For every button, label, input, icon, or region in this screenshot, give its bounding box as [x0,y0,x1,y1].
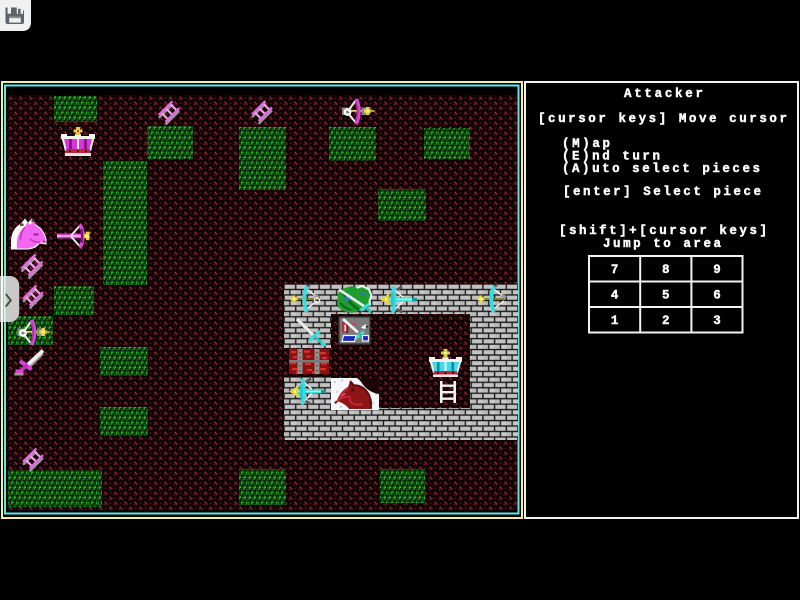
svg-text:8: 8 [662,263,670,277]
svg-text:5: 5 [662,289,670,303]
svg-text:3: 3 [713,314,721,328]
svg-text:7: 7 [611,263,619,277]
svg-text:[cursor keys] Move cursor: [cursor keys] Move cursor [538,112,787,126]
svg-text:1: 1 [611,314,619,328]
svg-text:2: 2 [662,314,670,328]
svg-text:9: 9 [713,263,721,277]
svg-text:4: 4 [611,289,619,303]
svg-text:6: 6 [713,289,721,303]
svg-text:[shift]+[cursor keys]: [shift]+[cursor keys] [559,224,767,238]
